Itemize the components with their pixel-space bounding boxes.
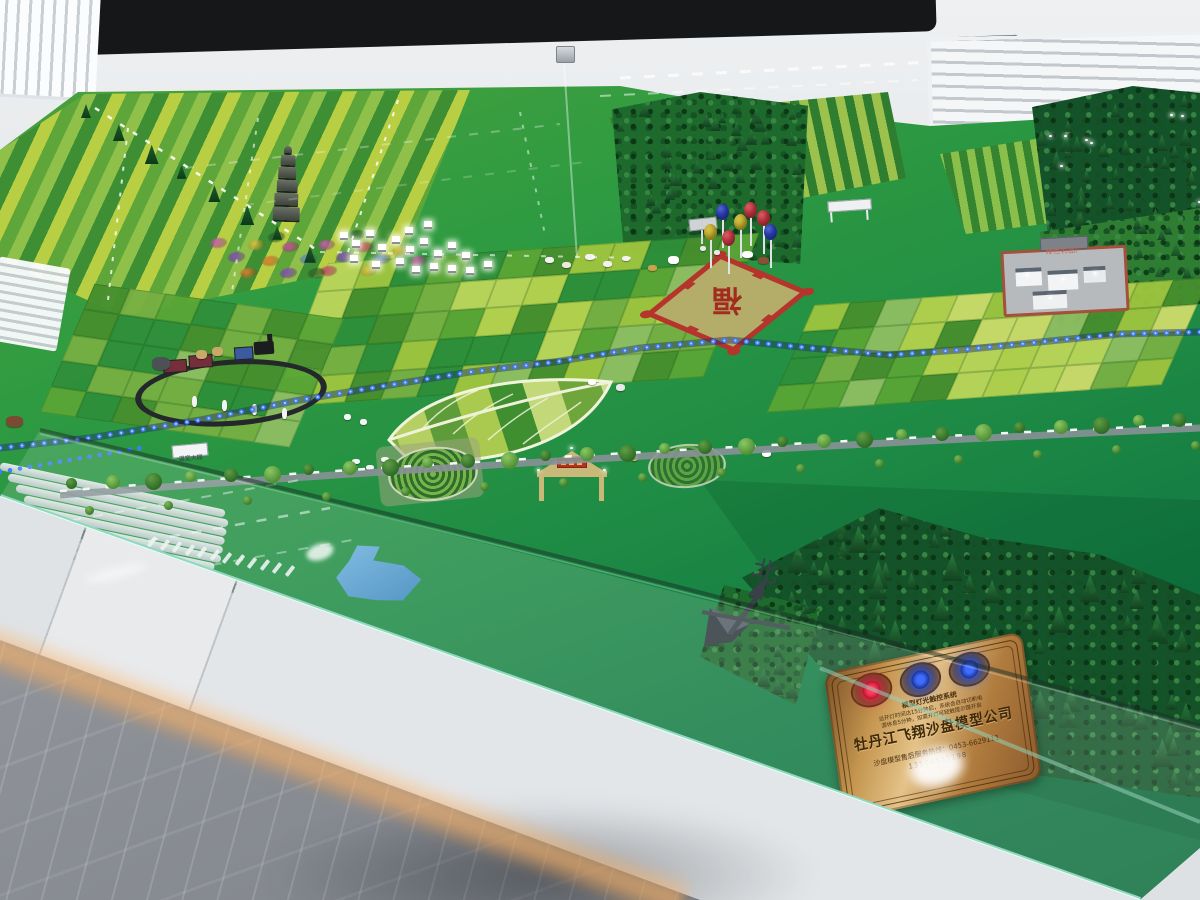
conifer-tree bbox=[1180, 95, 1189, 107]
conifer-tree bbox=[1182, 265, 1192, 278]
conifer-tree bbox=[817, 561, 835, 585]
train-scene bbox=[125, 319, 332, 438]
lit-house bbox=[412, 266, 420, 274]
dairy-factory: 绿色乳品厂 bbox=[1000, 245, 1129, 318]
conifer-tree bbox=[723, 156, 734, 171]
conifer-tree bbox=[1160, 157, 1169, 169]
conifer-tree bbox=[750, 107, 763, 124]
lit-house bbox=[396, 258, 404, 266]
roadside-tree bbox=[264, 466, 281, 483]
forest-light bbox=[1049, 135, 1052, 137]
plaza-diamond: 福 bbox=[644, 253, 809, 352]
conifer-tree bbox=[1082, 169, 1091, 181]
touch-button-blue-1 bbox=[910, 669, 930, 691]
panda-figurine bbox=[616, 384, 625, 391]
forest-light bbox=[1170, 114, 1173, 116]
lit-house bbox=[420, 238, 428, 246]
person-cutout bbox=[222, 400, 227, 411]
camel-figurine bbox=[212, 347, 223, 356]
animal-figurine bbox=[603, 261, 612, 267]
balloon bbox=[734, 214, 747, 230]
conifer-tree bbox=[932, 596, 950, 621]
forest-light bbox=[1090, 142, 1093, 144]
conifer-tree bbox=[707, 173, 719, 189]
conifer-tree bbox=[1120, 701, 1138, 726]
conifer-tree bbox=[1120, 139, 1132, 155]
animal-figurine bbox=[562, 262, 571, 268]
conifer-tree bbox=[1049, 606, 1069, 633]
forest-light bbox=[1085, 139, 1088, 141]
roadside-tree bbox=[954, 455, 963, 464]
conifer-tree bbox=[761, 131, 771, 144]
lit-house bbox=[392, 236, 400, 244]
balloon-stick bbox=[710, 236, 712, 268]
touch-button-red bbox=[861, 679, 881, 701]
conifer-tree bbox=[662, 143, 672, 157]
gate-post bbox=[539, 475, 544, 501]
lit-house bbox=[424, 221, 432, 229]
roadside-tree bbox=[619, 445, 636, 462]
conifer-tree bbox=[1111, 168, 1120, 180]
conifer-tree bbox=[963, 574, 977, 593]
balloon-stick bbox=[750, 214, 752, 246]
plaza-edge-mark bbox=[752, 271, 766, 279]
forest-light bbox=[1060, 165, 1063, 167]
roadside-tree bbox=[1014, 422, 1025, 433]
conifer-tree bbox=[1157, 228, 1166, 240]
conifer-tree bbox=[1119, 579, 1129, 593]
conifer-tree bbox=[1071, 135, 1083, 151]
conifer-tree bbox=[1050, 151, 1064, 170]
lit-house bbox=[340, 232, 348, 240]
conifer-tree bbox=[792, 162, 802, 175]
roadside-tree bbox=[303, 464, 314, 475]
roadside-tree bbox=[559, 478, 568, 487]
roadside-tree bbox=[817, 434, 831, 448]
lit-house bbox=[366, 230, 374, 238]
conifer-tree bbox=[1125, 199, 1134, 211]
roadside-tree bbox=[422, 457, 433, 468]
roadside-tree bbox=[738, 438, 755, 455]
conifer-tree bbox=[1133, 708, 1149, 729]
forest-light bbox=[1064, 135, 1067, 137]
pagoda-roof-dome bbox=[284, 146, 292, 155]
lit-house bbox=[352, 240, 360, 248]
gate-sign-mark bbox=[577, 461, 582, 465]
balloon bbox=[716, 204, 729, 220]
conifer-tree bbox=[757, 669, 771, 688]
gate-beam bbox=[537, 471, 607, 477]
conifer-tree bbox=[1174, 630, 1190, 652]
pagoda-tier bbox=[274, 193, 298, 208]
conifer-tree bbox=[710, 118, 720, 132]
roadside-tree bbox=[975, 424, 992, 441]
train-chimney bbox=[267, 334, 273, 342]
plaza-edge-mark bbox=[682, 281, 696, 290]
train-locomotive bbox=[254, 341, 275, 355]
person-cutout bbox=[252, 404, 257, 415]
lit-house bbox=[372, 261, 380, 269]
camel-figurine bbox=[196, 350, 207, 359]
conifer-tree bbox=[1175, 703, 1197, 733]
conifer-tree bbox=[1104, 195, 1114, 209]
conifer-tree bbox=[983, 580, 1000, 604]
conifer-tree bbox=[1122, 615, 1134, 631]
conifer-tree bbox=[885, 620, 906, 649]
vent-top-left bbox=[0, 0, 101, 102]
balloon-stick bbox=[740, 226, 742, 258]
forest-arch-banner bbox=[829, 199, 870, 224]
lit-house bbox=[448, 242, 456, 250]
lit-house bbox=[406, 246, 414, 254]
gate-sign-mark bbox=[561, 461, 566, 465]
roadside-tree bbox=[796, 464, 805, 473]
roadside-tree bbox=[935, 427, 949, 441]
photo-sand-table-display: 福 绿色乳品厂 bbox=[0, 0, 1200, 900]
conifer-tree bbox=[737, 171, 746, 183]
roadside-tree bbox=[580, 447, 594, 461]
gate-post bbox=[599, 475, 604, 501]
conifer-tree bbox=[646, 193, 656, 206]
conifer-tree bbox=[1110, 103, 1121, 117]
lit-house bbox=[430, 263, 438, 271]
glass-clamp bbox=[556, 46, 575, 63]
roadside-tree bbox=[1191, 441, 1200, 450]
conifer-tree bbox=[786, 681, 799, 699]
conifer-tree bbox=[1155, 265, 1164, 277]
gate-sign-mark bbox=[569, 461, 574, 465]
roadside-tree bbox=[777, 436, 788, 447]
cow-figurine bbox=[742, 251, 753, 258]
conifer-tree bbox=[786, 131, 797, 146]
roadside-tree bbox=[185, 471, 196, 482]
roadside-tree bbox=[659, 443, 670, 454]
cow-figurine bbox=[758, 257, 769, 264]
conifer-tree bbox=[809, 561, 819, 575]
conifer-tree bbox=[1022, 607, 1033, 622]
roadside-tree bbox=[1172, 413, 1186, 427]
goat-figurine bbox=[588, 379, 596, 385]
roadside-tree bbox=[896, 429, 907, 440]
roadside-tree bbox=[66, 478, 77, 489]
conifer-tree bbox=[1129, 589, 1144, 609]
roadside-tree bbox=[1133, 415, 1144, 426]
roadside-tree bbox=[401, 487, 410, 496]
conifer-tree bbox=[706, 146, 716, 160]
conifer-tree bbox=[1186, 771, 1196, 784]
conifer-tree bbox=[835, 616, 848, 634]
lit-house bbox=[434, 250, 442, 258]
balloon-stick bbox=[728, 242, 730, 274]
animal-figurine bbox=[585, 254, 595, 260]
conifer-tree bbox=[773, 657, 786, 675]
conifer-tree bbox=[1034, 639, 1046, 655]
balloon bbox=[704, 224, 717, 240]
conifer-tree bbox=[751, 155, 762, 170]
panda-figurine bbox=[714, 250, 720, 255]
conifer-tree bbox=[1133, 217, 1142, 229]
pagoda-tower bbox=[271, 145, 303, 212]
lit-house bbox=[448, 265, 456, 273]
compass-north: 北 bbox=[692, 550, 807, 650]
animal-figurine bbox=[622, 256, 630, 261]
conifer-tree bbox=[731, 100, 742, 114]
lit-house bbox=[378, 244, 386, 252]
goose-figurine bbox=[360, 419, 367, 425]
elephant-figurine bbox=[152, 357, 170, 370]
touch-button-blue-2 bbox=[959, 658, 979, 680]
pagoda-tier bbox=[276, 180, 297, 194]
roadside-tree bbox=[164, 501, 173, 510]
pagoda-tier bbox=[280, 155, 295, 168]
train-car-blue bbox=[234, 346, 254, 360]
compass-north-char: 北 bbox=[749, 555, 782, 590]
roadside-tree bbox=[540, 450, 551, 461]
conifer-tree bbox=[730, 136, 737, 146]
conifer-tree bbox=[848, 526, 868, 553]
roadside-tree bbox=[85, 506, 94, 515]
conifer-tree bbox=[1186, 171, 1197, 186]
conifer-tree bbox=[1166, 694, 1178, 710]
conifer-tree bbox=[789, 109, 797, 119]
balloon-stick bbox=[770, 236, 772, 268]
conifer-tree bbox=[1170, 145, 1180, 158]
conifer-tree bbox=[1179, 128, 1192, 146]
conifer-tree bbox=[731, 121, 742, 136]
lit-house bbox=[405, 227, 413, 235]
conifer-tree bbox=[1165, 225, 1172, 235]
dog-figurine bbox=[668, 256, 679, 264]
conifer-tree bbox=[1063, 120, 1072, 132]
lit-house bbox=[484, 261, 492, 269]
conifer-tree bbox=[1036, 131, 1047, 146]
pagoda-tier bbox=[272, 207, 300, 223]
sheep-figurine bbox=[366, 465, 374, 470]
plaza-edge-mark bbox=[685, 325, 699, 333]
plaza-edge-mark bbox=[761, 314, 775, 323]
pagoda-tier bbox=[278, 167, 296, 181]
conifer-tree bbox=[1135, 247, 1144, 259]
conifer-tree bbox=[1182, 150, 1191, 162]
conifer-tree bbox=[942, 553, 963, 581]
gate-light bbox=[570, 447, 573, 449]
conifer-tree bbox=[617, 121, 625, 132]
conifer-tree bbox=[1047, 202, 1057, 215]
person-cutout bbox=[192, 396, 197, 407]
roadside-tree bbox=[343, 461, 357, 475]
goose-figurine bbox=[344, 414, 351, 420]
goat-figurine bbox=[762, 450, 771, 457]
horse-figurine bbox=[6, 416, 23, 427]
conifer-tree bbox=[837, 541, 849, 557]
roadside-tree bbox=[106, 475, 120, 489]
animal-figurine bbox=[648, 265, 657, 271]
conifer-tree bbox=[1147, 613, 1168, 641]
roadside-tree bbox=[145, 473, 162, 490]
balloon bbox=[744, 202, 757, 218]
animal-figurine bbox=[545, 257, 554, 263]
panda-figurine bbox=[700, 246, 706, 251]
plaza-fu-character: 福 bbox=[712, 281, 742, 325]
conifer-tree bbox=[1168, 771, 1181, 788]
roadside-tree bbox=[382, 459, 399, 476]
conifer-tree bbox=[718, 113, 726, 124]
conifer-tree bbox=[692, 160, 702, 174]
conifer-tree bbox=[771, 678, 784, 695]
factory-building bbox=[1033, 290, 1068, 310]
roadside-tree bbox=[1033, 450, 1042, 459]
forest-light bbox=[1181, 115, 1184, 117]
conifer-tree bbox=[929, 533, 940, 548]
balloon bbox=[722, 230, 735, 246]
conifer-tree bbox=[1171, 242, 1182, 256]
factory-building bbox=[1015, 267, 1042, 286]
gate-light bbox=[537, 469, 540, 471]
conifer-tree bbox=[702, 113, 712, 127]
conifer-tree bbox=[1156, 134, 1168, 151]
gate-light bbox=[603, 469, 606, 471]
lit-house bbox=[350, 255, 358, 263]
balloon bbox=[764, 224, 777, 240]
lit-house bbox=[466, 267, 474, 275]
factory-sign: 绿色乳品厂 bbox=[1040, 236, 1089, 251]
lit-house bbox=[462, 252, 470, 260]
person-cutout bbox=[282, 408, 287, 419]
roadside-tree bbox=[322, 492, 331, 501]
roadside-tree bbox=[1054, 420, 1068, 434]
roadside-tree bbox=[501, 452, 518, 469]
conifer-tree bbox=[1080, 574, 1101, 602]
conifer-tree bbox=[905, 572, 918, 589]
conifer-tree bbox=[1143, 155, 1153, 168]
